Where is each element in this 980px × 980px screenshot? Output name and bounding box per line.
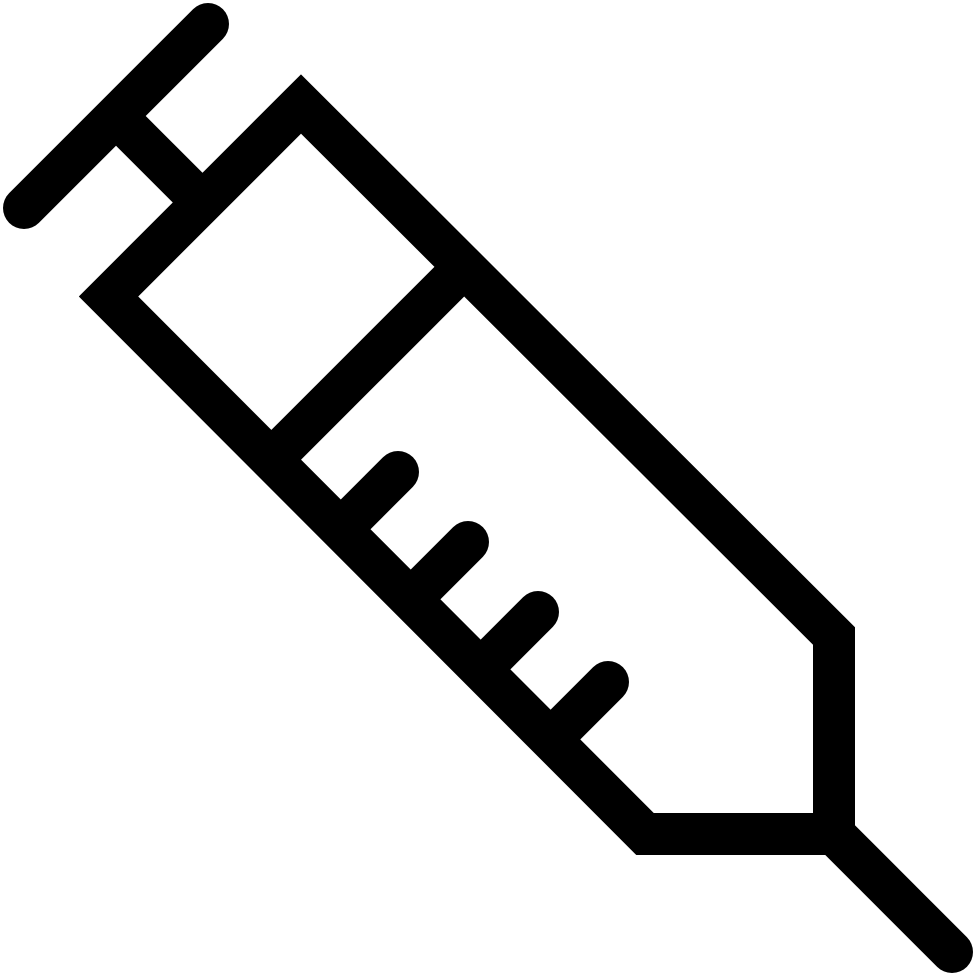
- scale-tick-3: [481, 612, 538, 669]
- needle: [834, 834, 952, 952]
- scale-tick-2: [411, 542, 468, 599]
- scale-tick-4: [551, 682, 608, 739]
- scale-tick-1: [341, 472, 398, 529]
- syringe-icon: [0, 0, 980, 980]
- syringe-icon-svg: [0, 0, 980, 980]
- barrel-outline: [109, 104, 835, 834]
- barrel-divider: [262, 257, 474, 469]
